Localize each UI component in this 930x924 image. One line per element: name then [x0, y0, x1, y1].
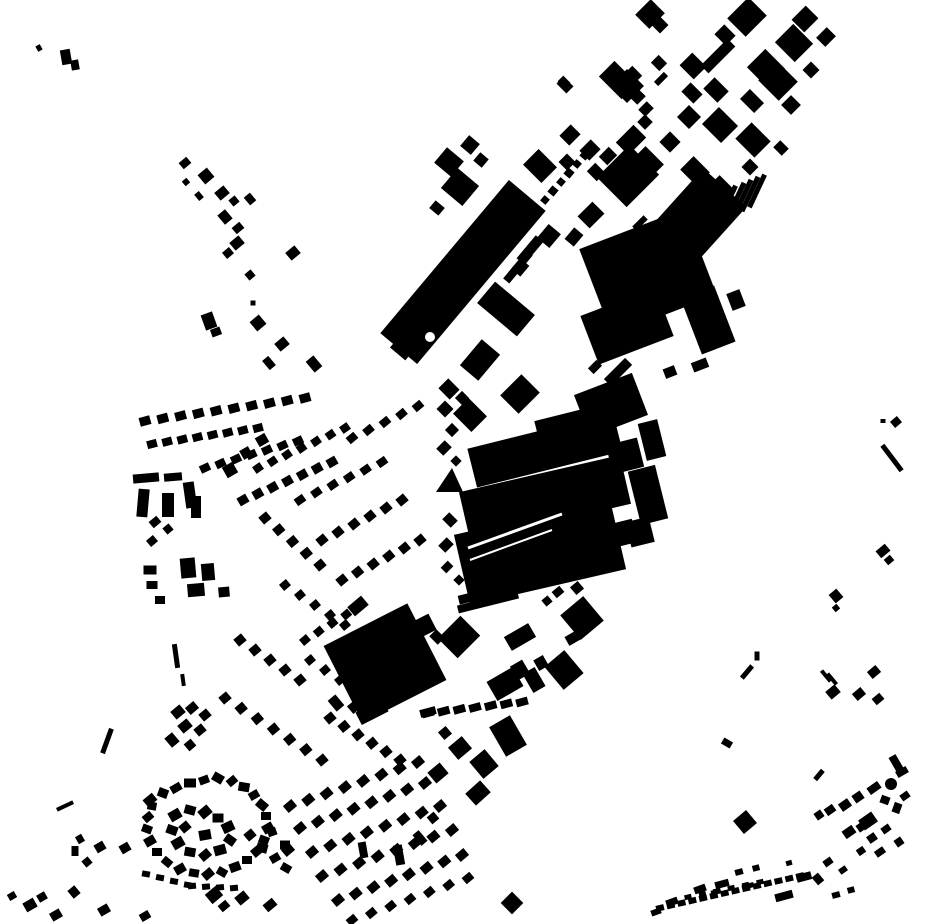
building-shape	[822, 857, 833, 868]
building-shape	[763, 880, 772, 888]
building-shape	[885, 778, 897, 790]
building-shape	[832, 604, 840, 612]
building-shape	[294, 589, 306, 601]
building-shape	[228, 861, 241, 873]
building-shape	[261, 444, 273, 455]
building-shape	[229, 235, 245, 250]
building-shape	[180, 557, 197, 578]
building-shape	[170, 878, 179, 885]
building-shape	[404, 893, 417, 906]
building-shape	[162, 493, 174, 517]
building-shape	[366, 880, 380, 894]
building-shape	[7, 891, 17, 901]
building-shape	[879, 795, 890, 806]
building-shape	[445, 423, 459, 437]
building-shape	[152, 848, 162, 856]
building-shape	[638, 419, 667, 461]
building-shape	[489, 715, 527, 756]
building-shape	[319, 786, 333, 800]
building-shape	[559, 124, 580, 145]
building-shape	[413, 533, 426, 546]
building-shape	[565, 227, 584, 246]
building-shape	[813, 809, 824, 820]
building-shape	[523, 149, 557, 183]
building-shape	[313, 626, 325, 638]
building-shape	[118, 842, 131, 855]
building-shape	[398, 541, 411, 554]
building-shape	[263, 653, 276, 666]
building-shape	[781, 95, 801, 115]
building-shape	[236, 494, 249, 507]
building-shape	[294, 494, 307, 506]
building-shape	[293, 821, 307, 835]
building-shape	[552, 586, 565, 599]
building-shape	[81, 856, 92, 867]
building-shape	[258, 511, 271, 524]
building-shape	[325, 456, 338, 469]
building-shape	[251, 301, 256, 306]
building-shape	[244, 193, 257, 206]
building-shape	[255, 433, 270, 447]
building-shape	[637, 114, 653, 130]
building-shape	[842, 825, 857, 839]
building-shape	[441, 168, 479, 206]
building-shape	[165, 824, 178, 836]
building-shape	[133, 472, 160, 483]
map-canvas	[0, 0, 930, 924]
building-shape	[309, 599, 321, 611]
building-shape	[244, 269, 255, 280]
building-shape	[67, 885, 80, 898]
building-shape	[261, 812, 271, 820]
building-shape	[412, 400, 425, 413]
building-shape	[198, 829, 212, 841]
building-shape	[638, 101, 654, 117]
building-shape	[450, 455, 461, 466]
building-shape	[341, 832, 355, 846]
building-shape	[347, 517, 360, 530]
building-shape	[465, 780, 491, 805]
building-shape	[161, 437, 173, 447]
building-shape	[97, 903, 111, 916]
building-shape	[146, 535, 158, 547]
building-shape	[881, 419, 886, 423]
building-shape	[578, 202, 605, 229]
building-shape	[339, 422, 351, 434]
building-shape	[75, 834, 85, 844]
building-shape	[228, 195, 239, 206]
building-shape	[349, 887, 363, 901]
building-shape	[659, 131, 680, 152]
building-footprint-map	[0, 0, 930, 924]
building-shape	[36, 891, 48, 902]
building-shape	[880, 824, 891, 835]
building-shape	[453, 704, 467, 715]
building-shape	[201, 563, 215, 581]
building-shape	[774, 890, 793, 902]
building-shape	[180, 674, 186, 686]
building-shape	[333, 862, 347, 876]
building-shape	[856, 846, 867, 856]
building-shape	[188, 883, 196, 890]
building-shape	[173, 862, 187, 875]
building-shape	[222, 247, 234, 259]
building-shape	[540, 195, 550, 205]
building-shape	[217, 209, 232, 225]
building-shape	[142, 870, 151, 877]
building-shape	[218, 691, 231, 704]
building-shape	[427, 762, 448, 783]
building-shape	[222, 427, 234, 437]
building-shape	[433, 799, 447, 813]
building-shape	[726, 289, 746, 311]
building-shape	[654, 72, 668, 86]
building-shape	[720, 889, 729, 897]
building-shape	[893, 836, 904, 847]
building-shape	[139, 910, 152, 922]
building-shape	[378, 819, 392, 833]
building-shape	[194, 191, 204, 201]
building-shape	[655, 904, 664, 912]
building-shape	[441, 561, 454, 574]
building-shape	[681, 82, 702, 103]
building-shape	[262, 356, 276, 370]
building-shape	[484, 700, 498, 711]
building-shape	[192, 432, 204, 442]
building-shape	[752, 864, 760, 872]
building-shape	[201, 311, 218, 330]
building-shape	[139, 415, 152, 427]
building-shape	[216, 884, 224, 891]
building-shape	[813, 769, 825, 781]
building-shape	[453, 574, 464, 585]
building-shape	[351, 565, 364, 578]
building-shape	[267, 455, 279, 467]
building-shape	[278, 663, 291, 676]
building-shape	[702, 107, 738, 143]
building-shape	[182, 178, 190, 186]
building-shape	[331, 525, 344, 538]
building-shape	[500, 698, 514, 709]
building-shape	[177, 718, 193, 733]
building-shape	[276, 440, 288, 451]
building-shape	[691, 357, 710, 372]
building-shape	[785, 860, 792, 866]
building-shape	[248, 789, 261, 801]
building-shape	[251, 712, 264, 725]
building-shape	[395, 408, 408, 421]
building-shape	[283, 799, 297, 813]
building-shape	[184, 804, 197, 816]
building-shape	[892, 802, 903, 814]
building-shape	[677, 105, 701, 129]
building-shape	[218, 587, 230, 598]
building-shape	[185, 701, 199, 715]
building-shape	[460, 135, 480, 155]
building-shape	[248, 643, 261, 656]
building-shape	[774, 877, 783, 885]
building-shape	[213, 814, 224, 823]
building-shape	[360, 825, 374, 839]
building-shape	[164, 732, 179, 748]
building-shape	[436, 440, 452, 456]
building-shape	[358, 841, 369, 858]
building-shape	[445, 823, 459, 837]
building-shape	[306, 355, 323, 372]
building-shape	[216, 866, 229, 878]
building-shape	[825, 684, 841, 699]
building-shape	[227, 402, 240, 414]
building-shape	[198, 168, 215, 185]
building-shape	[72, 846, 79, 856]
building-shape	[198, 708, 211, 721]
building-shape	[423, 886, 436, 899]
building-shape	[756, 879, 764, 885]
building-shape	[172, 644, 180, 668]
building-shape	[880, 444, 903, 473]
building-shape	[179, 157, 192, 170]
building-shape	[184, 847, 196, 858]
building-shape	[304, 654, 316, 666]
building-shape	[852, 687, 866, 701]
building-shape	[500, 374, 540, 414]
building-shape	[714, 879, 729, 889]
building-shape	[301, 793, 315, 807]
building-shape	[740, 89, 764, 113]
building-shape	[884, 555, 895, 566]
building-shape	[890, 416, 902, 428]
building-shape	[426, 830, 440, 844]
building-shape	[379, 501, 392, 514]
building-shape	[437, 401, 454, 418]
building-shape	[427, 812, 440, 825]
building-shape	[803, 62, 820, 79]
building-shape	[149, 516, 162, 529]
building-shape	[280, 862, 293, 874]
building-shape	[136, 489, 149, 518]
building-shape	[379, 416, 392, 429]
building-shape	[677, 899, 686, 907]
building-shape	[437, 706, 451, 717]
building-shape	[243, 828, 256, 841]
building-shape	[473, 152, 488, 167]
building-shape	[559, 154, 576, 171]
building-shape	[296, 468, 309, 481]
building-shape	[374, 768, 388, 782]
building-shape	[628, 465, 668, 525]
building-shape	[455, 848, 469, 862]
building-shape	[242, 856, 252, 864]
building-shape	[735, 122, 770, 157]
building-shape	[269, 852, 282, 864]
building-shape	[351, 728, 364, 741]
building-shape	[252, 423, 264, 433]
building-shape	[263, 397, 276, 409]
building-shape	[570, 581, 584, 595]
building-shape	[400, 782, 414, 796]
building-shape	[162, 523, 173, 534]
building-shape	[866, 781, 881, 795]
building-shape	[286, 535, 299, 548]
building-shape	[223, 833, 237, 847]
building-shape	[267, 722, 280, 735]
building-shape	[755, 652, 760, 661]
building-shape	[193, 723, 206, 736]
building-shape	[727, 0, 767, 37]
building-shape	[701, 39, 736, 74]
building-shape	[191, 496, 201, 518]
building-shape	[838, 865, 848, 875]
building-shape	[384, 900, 397, 913]
building-shape	[411, 755, 425, 769]
building-shape	[651, 55, 667, 71]
building-shape	[393, 761, 407, 775]
building-shape	[371, 849, 385, 863]
building-shape	[237, 425, 249, 435]
building-shape	[343, 471, 356, 483]
building-shape	[210, 405, 223, 417]
building-shape	[170, 704, 186, 719]
building-shape	[740, 664, 754, 679]
building-shape	[556, 177, 566, 187]
building-shape	[469, 749, 498, 779]
building-shape	[442, 512, 458, 528]
building-shape	[831, 891, 840, 899]
building-shape	[384, 874, 398, 888]
building-shape	[245, 400, 258, 412]
building-shape	[157, 787, 169, 799]
building-shape	[56, 800, 74, 811]
building-shape	[501, 892, 524, 915]
building-shape	[419, 861, 433, 875]
building-shape	[161, 856, 174, 869]
building-shape	[680, 53, 707, 80]
building-shape	[362, 424, 375, 437]
building-shape	[468, 702, 482, 713]
building-shape	[281, 475, 294, 488]
building-shape	[299, 743, 312, 756]
building-shape	[178, 820, 191, 833]
building-shape	[234, 890, 250, 905]
building-shape	[211, 771, 225, 784]
building-shape	[363, 509, 376, 522]
building-shape	[337, 720, 350, 733]
building-shape	[560, 596, 604, 640]
building-shape	[721, 737, 733, 748]
building-shape	[346, 802, 360, 816]
building-shape	[325, 429, 337, 441]
building-shape	[816, 27, 836, 47]
building-shape	[293, 673, 306, 686]
building-shape	[272, 523, 285, 536]
building-shape	[184, 739, 197, 752]
building-shape	[899, 791, 910, 802]
building-shape	[775, 24, 813, 62]
building-shape	[167, 808, 182, 823]
building-shape	[313, 558, 326, 571]
building-shape	[346, 914, 359, 924]
building-shape	[49, 908, 63, 921]
building-shape	[310, 435, 322, 447]
building-shape	[300, 547, 313, 560]
building-shape	[198, 848, 212, 862]
building-shape	[164, 472, 183, 482]
building-shape	[155, 596, 165, 604]
building-shape	[263, 898, 278, 913]
building-shape	[319, 664, 331, 676]
building-shape	[382, 789, 396, 803]
building-shape	[93, 841, 106, 854]
building-shape	[274, 336, 290, 351]
building-shape	[366, 557, 379, 570]
building-shape	[847, 886, 855, 894]
building-shape	[331, 893, 345, 907]
building-shape	[438, 378, 459, 399]
building-shape	[147, 581, 158, 589]
building-shape	[315, 869, 329, 883]
building-shape	[250, 315, 267, 332]
building-shape	[70, 59, 80, 70]
building-shape	[515, 697, 529, 708]
building-shape	[234, 702, 247, 715]
building-shape	[356, 774, 370, 788]
building-shape	[169, 782, 183, 794]
building-shape	[477, 282, 535, 337]
building-shape	[315, 533, 328, 546]
building-shape	[198, 775, 210, 786]
building-shape	[156, 874, 165, 881]
building-shape	[156, 413, 169, 425]
building-shape	[438, 726, 452, 740]
building-shape	[425, 332, 435, 342]
building-shape	[144, 566, 157, 575]
building-shape	[218, 900, 231, 913]
building-shape	[382, 549, 395, 562]
building-shape	[201, 867, 215, 881]
building-shape	[323, 711, 336, 724]
building-shape	[866, 832, 878, 844]
building-shape	[199, 462, 211, 473]
building-shape	[35, 44, 42, 52]
building-shape	[376, 456, 389, 468]
building-shape	[773, 140, 789, 156]
building-shape	[504, 623, 536, 651]
building-shape	[328, 694, 345, 711]
building-shape	[238, 782, 250, 793]
building-shape	[462, 872, 475, 885]
building-shape	[335, 573, 348, 586]
building-shape	[867, 665, 881, 679]
building-shape	[100, 728, 114, 754]
building-shape	[395, 493, 408, 506]
building-shape	[188, 868, 199, 878]
building-shape	[429, 200, 445, 215]
building-shape	[396, 812, 410, 826]
building-shape	[365, 907, 378, 920]
building-shape	[448, 736, 472, 760]
building-shape	[283, 733, 296, 746]
building-shape	[346, 432, 359, 445]
building-shape	[310, 486, 323, 498]
building-shape	[460, 339, 500, 380]
building-shape	[143, 834, 157, 847]
building-shape	[226, 775, 239, 788]
building-shape	[339, 619, 351, 631]
building-shape	[829, 589, 844, 604]
building-shape	[311, 815, 325, 829]
building-shape	[563, 167, 574, 178]
building-shape	[197, 804, 213, 819]
